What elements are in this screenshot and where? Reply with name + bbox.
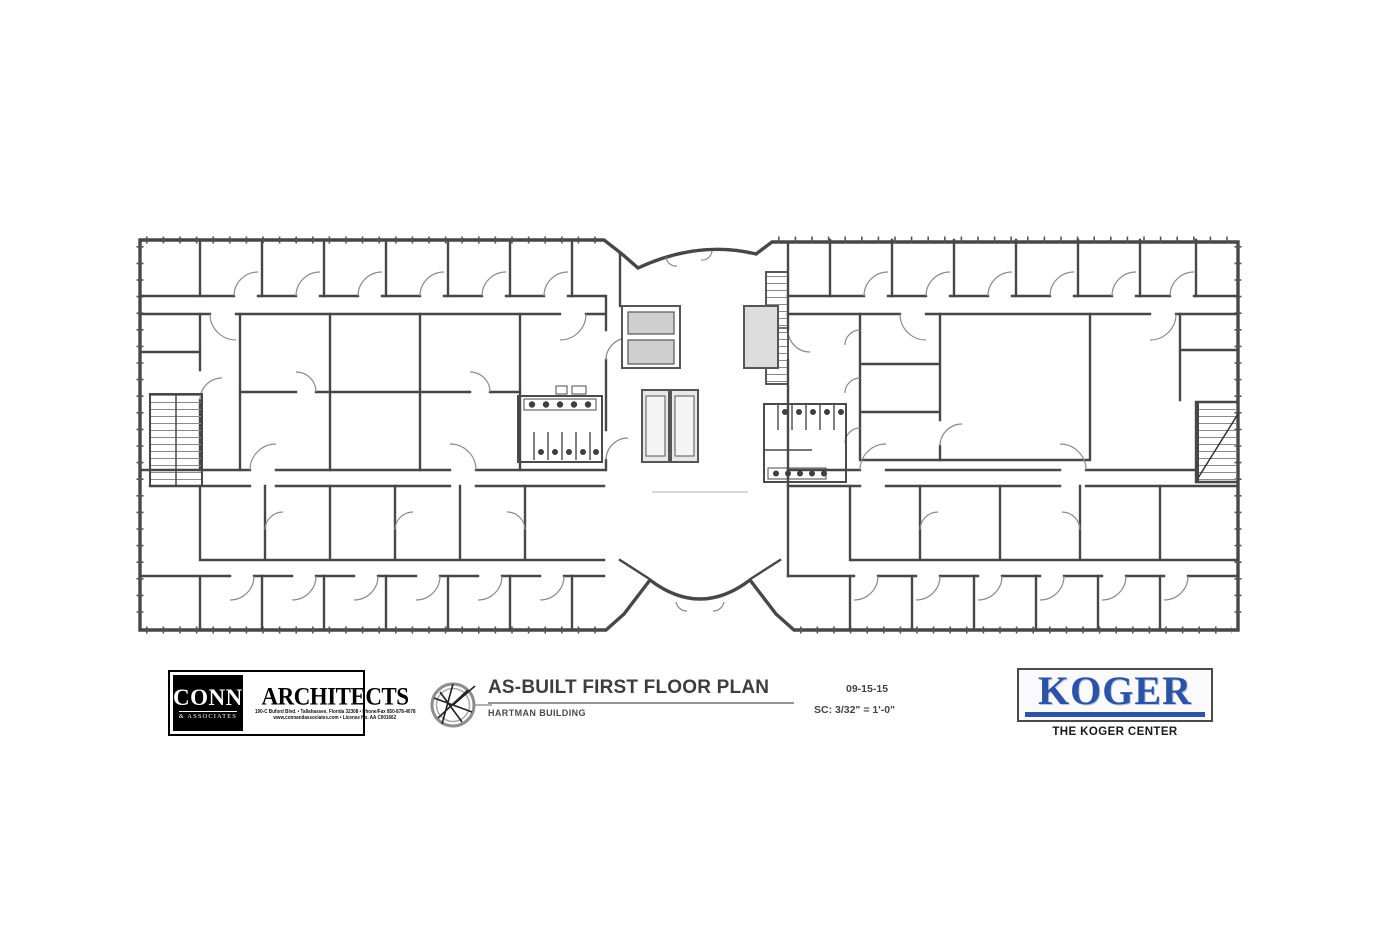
architect-logo-block: CONN & ASSOCIATES ARCHITECTS 190-C Bufor… [168,670,365,736]
conn-associates: & ASSOCIATES [179,711,237,720]
drawing-title: AS-BUILT FIRST FLOOR PLAN [488,677,794,699]
koger-wordmark: KOGER [1019,670,1211,712]
drawing-date: 09-15-15 [846,683,888,695]
architects-text: ARCHITECTS [261,684,408,710]
conn-name: CONN [173,687,243,709]
drawing-sheet: CONN & ASSOCIATES ARCHITECTS 190-C Bufor… [0,0,1400,934]
compass-drafting-icon [428,677,494,733]
building-name: HARTMAN BUILDING [488,708,794,718]
conn-logo: CONN & ASSOCIATES [173,675,243,731]
title-block: AS-BUILT FIRST FLOOR PLAN HARTMAN BUILDI… [488,677,794,718]
drawing-scale: SC: 3/32" = 1'-0" [814,704,895,716]
architects-wordmark: ARCHITECTS 190-C Buford Blvd. • Tallahas… [246,672,425,734]
floor-plan-drawing [0,0,1400,934]
koger-underline-bar [1025,712,1205,717]
title-underline [488,702,794,704]
architect-credentials: www.connandassociates.com • License No. … [274,715,397,721]
koger-logo-box: KOGER [1017,668,1213,722]
koger-caption: THE KOGER CENTER [1017,726,1213,738]
